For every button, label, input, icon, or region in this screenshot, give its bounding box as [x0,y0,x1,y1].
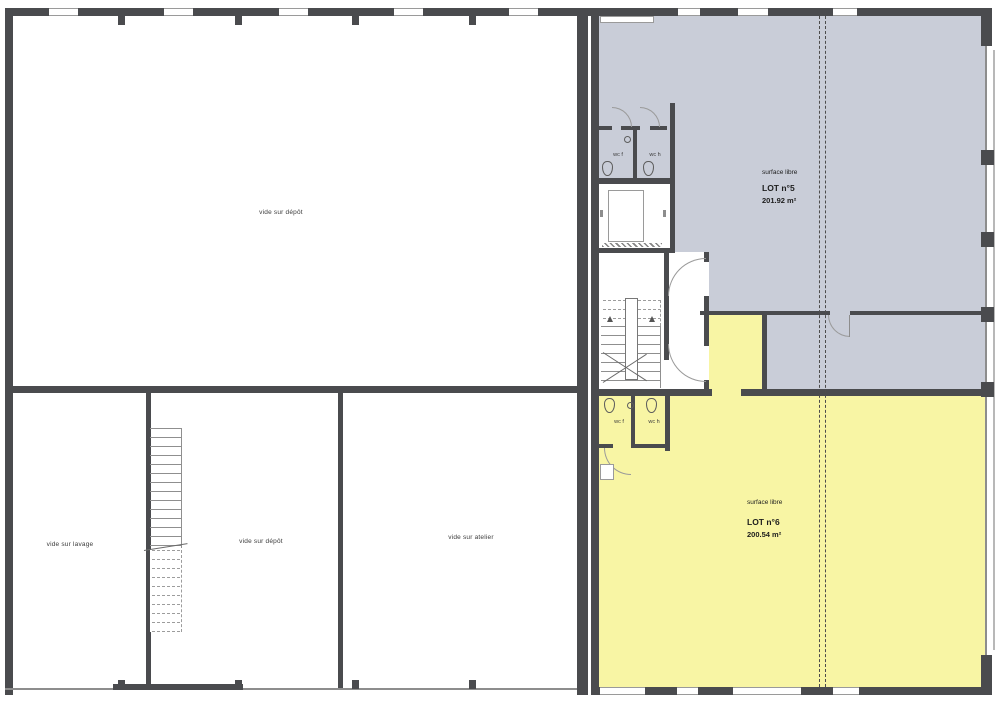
lot6-area-fill [599,389,985,688]
lot6-name-label: LOT n°6 [747,517,780,527]
wc-bottom-bottom-wall-seg2 [631,444,670,448]
lot5-area-label: 201.92 m² [762,196,796,205]
window-sill [600,16,654,23]
wc-top-bottom-wall [599,178,675,184]
pilaster [118,680,125,689]
lot5-partition-seg2 [850,311,985,315]
stair-direction-arrow [649,316,655,322]
lot6-area-label: 200.54 m² [747,530,781,539]
elevator-car [608,190,644,242]
left-wing-left-wall [5,8,13,695]
elevator-door-hatch [602,243,662,247]
window [833,687,859,695]
corridor-right-wall-seg2 [704,296,709,346]
pilaster [981,150,994,165]
elevator-guide-right [663,210,666,217]
lot6-annex-room-fill [709,315,767,389]
left-wing-mid-wall [5,386,577,393]
sink-icon [627,402,634,409]
room-label-vide-sur-depot-small: vide sur dépôt [221,538,301,545]
lot-boundary-wall-seg1 [591,389,712,396]
right-facade-line [985,16,987,687]
lot5-name-label: LOT n°5 [762,183,795,193]
wc-bottom-right-wall [665,393,670,451]
floor-plan: vide sur dépôt vide sur lavage vide sur … [0,0,1000,707]
right-facade-corner-bottom [981,655,992,695]
window [677,687,698,695]
right-facade-corner-top [981,8,992,46]
pilaster [352,680,359,689]
wc-top-right-wall [670,103,675,184]
window [600,687,645,695]
lot5-surface-label: surface libre [762,169,797,176]
pilaster [981,232,994,247]
wc-top-left-label: wc f [608,152,628,158]
window [49,8,78,16]
pilaster [469,16,476,25]
right-facade-glazing-line [993,50,995,650]
sink-icon [624,136,631,143]
left-stair-treads [150,428,182,548]
right-wing-left-wall [591,8,599,695]
window [678,8,700,16]
room-label-vide-sur-lavage: vide sur lavage [30,541,110,548]
duct-shaft [600,464,614,480]
wc-bottom-right-label: wc h [644,419,664,425]
annex-top-wall [700,311,767,315]
window [738,8,768,16]
wc-top-divider-wall [633,126,637,184]
window [279,8,308,16]
annex-right-wall [762,311,767,389]
room-label-vide-sur-depot-main: vide sur dépôt [231,209,331,216]
expansion-joint-line [825,16,826,687]
elevator-guide-left [600,210,603,217]
wc-bottom-left-label: wc f [609,419,629,425]
wc-top-right-label: wc h [645,152,665,158]
pilaster [352,16,359,25]
pilaster [235,16,242,25]
left-wing-partition-2 [338,393,343,688]
left-wing-bottom-wall-segment [113,684,243,690]
left-stair-treads-dashed [150,550,182,632]
left-wing-right-wall [577,8,588,695]
window [164,8,193,16]
room-label-vide-sur-atelier: vide sur atelier [431,534,511,541]
lot6-surface-label: surface libre [747,499,782,506]
window [833,8,857,16]
elevator-right-wall [670,184,675,253]
window [733,687,801,695]
window [509,8,538,16]
lot5-partition-seg1 [767,311,830,315]
expansion-joint-line [819,16,820,687]
lot-boundary-wall-seg2 [741,389,985,396]
stair-direction-arrow [607,316,613,322]
wc-top-top-wall-seg1 [599,126,612,130]
pilaster [469,680,476,689]
window [394,8,423,16]
left-wing-bottom-line [5,688,588,690]
right-wing-top-wall [588,8,992,16]
door-leaf [849,315,850,337]
pilaster [118,16,125,25]
pilaster [235,680,242,689]
